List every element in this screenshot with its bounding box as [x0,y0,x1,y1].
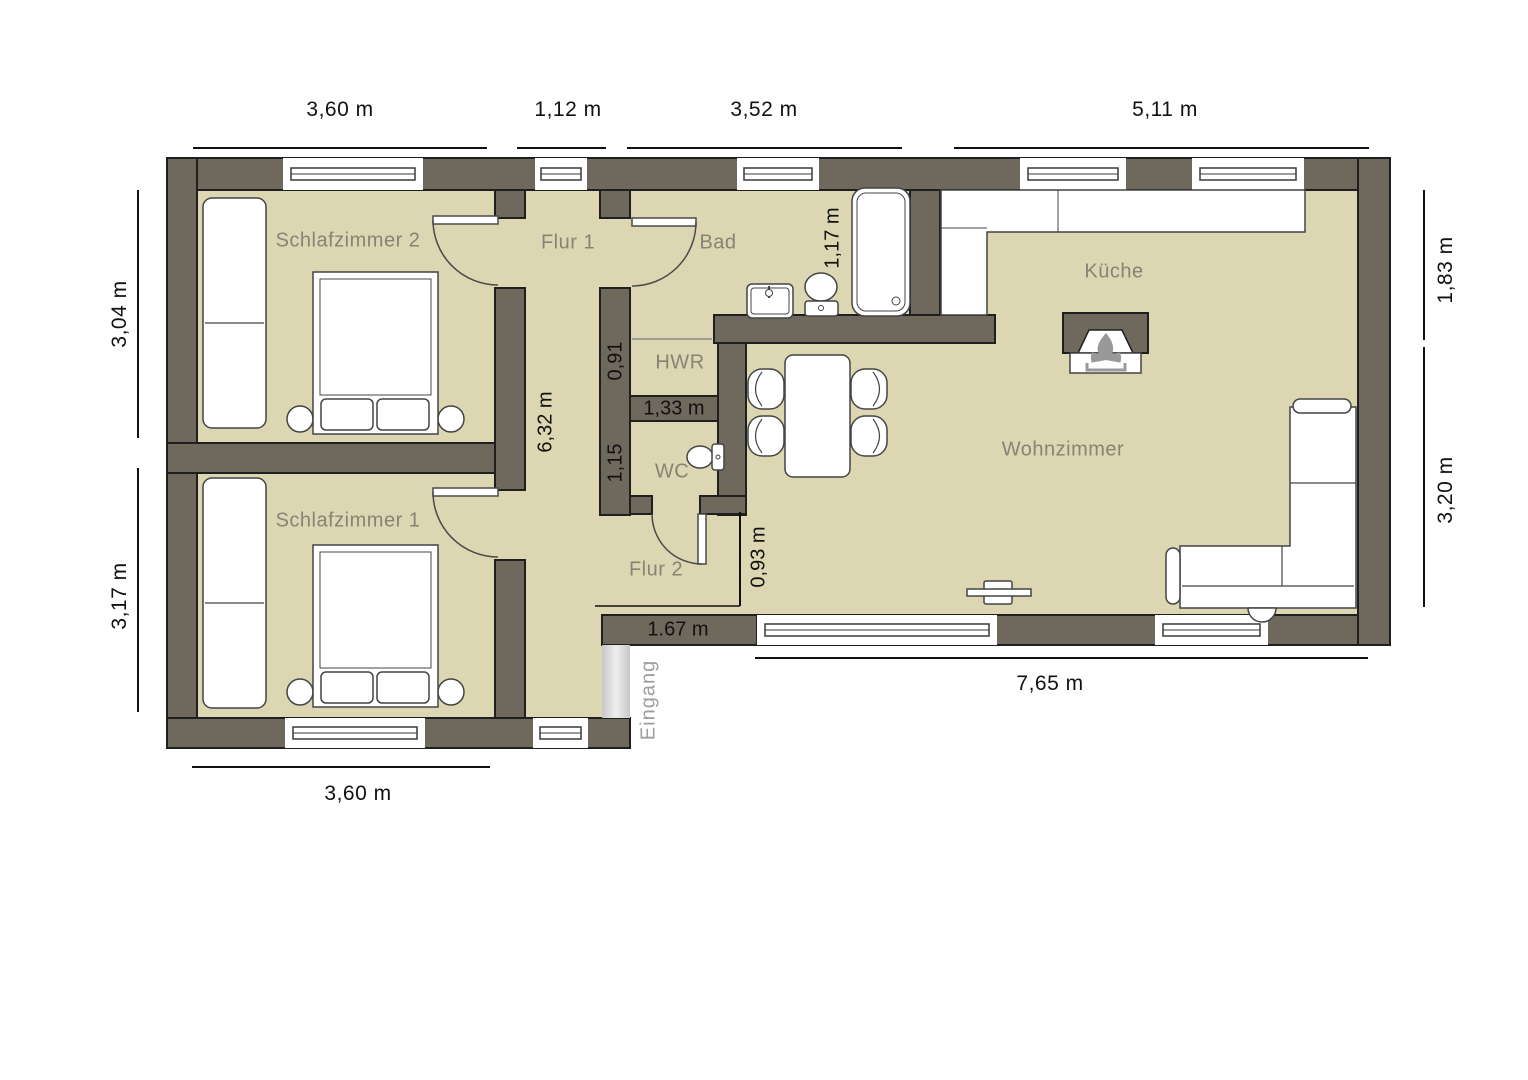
window-kueche-top-2 [1192,158,1304,190]
dim-label-hall-length: 6,32 m [535,391,558,452]
wall-bad-kueche [910,190,940,315]
entrance-door-mat [602,645,630,718]
nightstand [287,679,313,705]
floor-plan-canvas: 3,60 m 1,12 m 3,52 m 5,11 m 3,04 m 3,17 … [0,0,1528,1080]
window-schlafzimmer1-bottom [285,718,425,748]
room-label-schlafzimmer1: Schlafzimmer 1 [276,510,421,533]
room-label-flur1: Flur 1 [541,232,595,255]
bed-schlafzimmer1 [287,545,464,707]
sink [747,284,793,318]
dim-label-right-2: 3,20 m [1434,456,1458,523]
wall-bedrooms-hall-mid [495,288,525,490]
dim-label-top-2: 1,12 m [534,98,601,122]
dim-label-wc-width: 1,15 [605,444,628,483]
sofa-armrest [1166,548,1180,604]
pillow [377,399,429,430]
pillow [377,672,429,703]
wall-wc-bottom-left [630,496,652,514]
pillow [321,672,373,703]
dim-label-top-3: 3,52 m [730,98,797,122]
dim-label-left-1: 3,04 m [108,280,132,347]
window-bad-top [737,158,819,190]
room-label-bad: Bad [699,232,736,255]
wall-bedroom-divider [167,443,523,473]
dim-label-top-4: 5,11 m [1132,98,1198,122]
bed-schlafzimmer2 [287,272,464,434]
dim-label-bottom-bedroom: 3,60 m [324,782,391,806]
wall-hwr-wc-right [718,315,746,515]
room-label-wc: WC [655,461,689,484]
dim-label-hwr-wc-wall: 1,33 m [643,398,704,421]
window-kueche-top-1 [1020,158,1126,190]
dim-label-bathtub: 1,17 m [822,207,845,268]
chair [748,369,784,409]
sofa-armrest [1293,399,1351,413]
toilet-wc [687,444,724,470]
nightstand [438,679,464,705]
chair [851,369,887,409]
bathtub [852,188,910,316]
wardrobe-schlafzimmer2 [203,198,266,428]
window-schlafzimmer2-top [283,158,423,190]
dim-label-left-2: 3,17 m [108,562,132,629]
room-label-flur2: Flur 2 [629,559,683,582]
dim-label-right-1: 1,83 m [1434,236,1458,303]
toilet-bad [805,273,838,316]
dim-label-bottom-living: 7,65 m [1016,672,1083,696]
window-flur-bottom [533,718,588,748]
wall-bad-bottom [714,315,995,343]
dim-label-hwr-width: 0,91 [605,342,628,381]
wall-hall-bad-stub [600,190,630,218]
dining-table [785,355,850,477]
chair [748,416,784,456]
entrance-label: Eingang [638,660,661,740]
room-label-hwr: HWR [655,352,704,375]
window-wohnzimmer-bottom-1 [757,615,997,645]
dim-label-flur2-opening: 0,93 m [748,526,771,587]
room-label-wohnzimmer: Wohnzimmer [1002,439,1124,462]
wall-exterior-right [1358,158,1390,645]
window-wohnzimmer-bottom-2 [1155,615,1268,645]
room-label-kueche: Küche [1084,261,1143,284]
wall-wc-bottom-right [700,496,746,514]
fireplace [1063,313,1148,373]
wall-bedrooms-hall-bottom [495,560,525,718]
window-flur1-top [535,158,587,190]
room-label-schlafzimmer2: Schlafzimmer 2 [276,230,421,253]
dim-label-entry-wall: 1.67 m [647,619,708,642]
dim-label-top-1: 3,60 m [306,98,373,122]
nightstand [438,406,464,432]
pillow [321,399,373,430]
nightstand [287,406,313,432]
chair [851,416,887,456]
wall-bedrooms-hall-top [495,190,525,218]
wardrobe-schlafzimmer1 [203,478,266,708]
